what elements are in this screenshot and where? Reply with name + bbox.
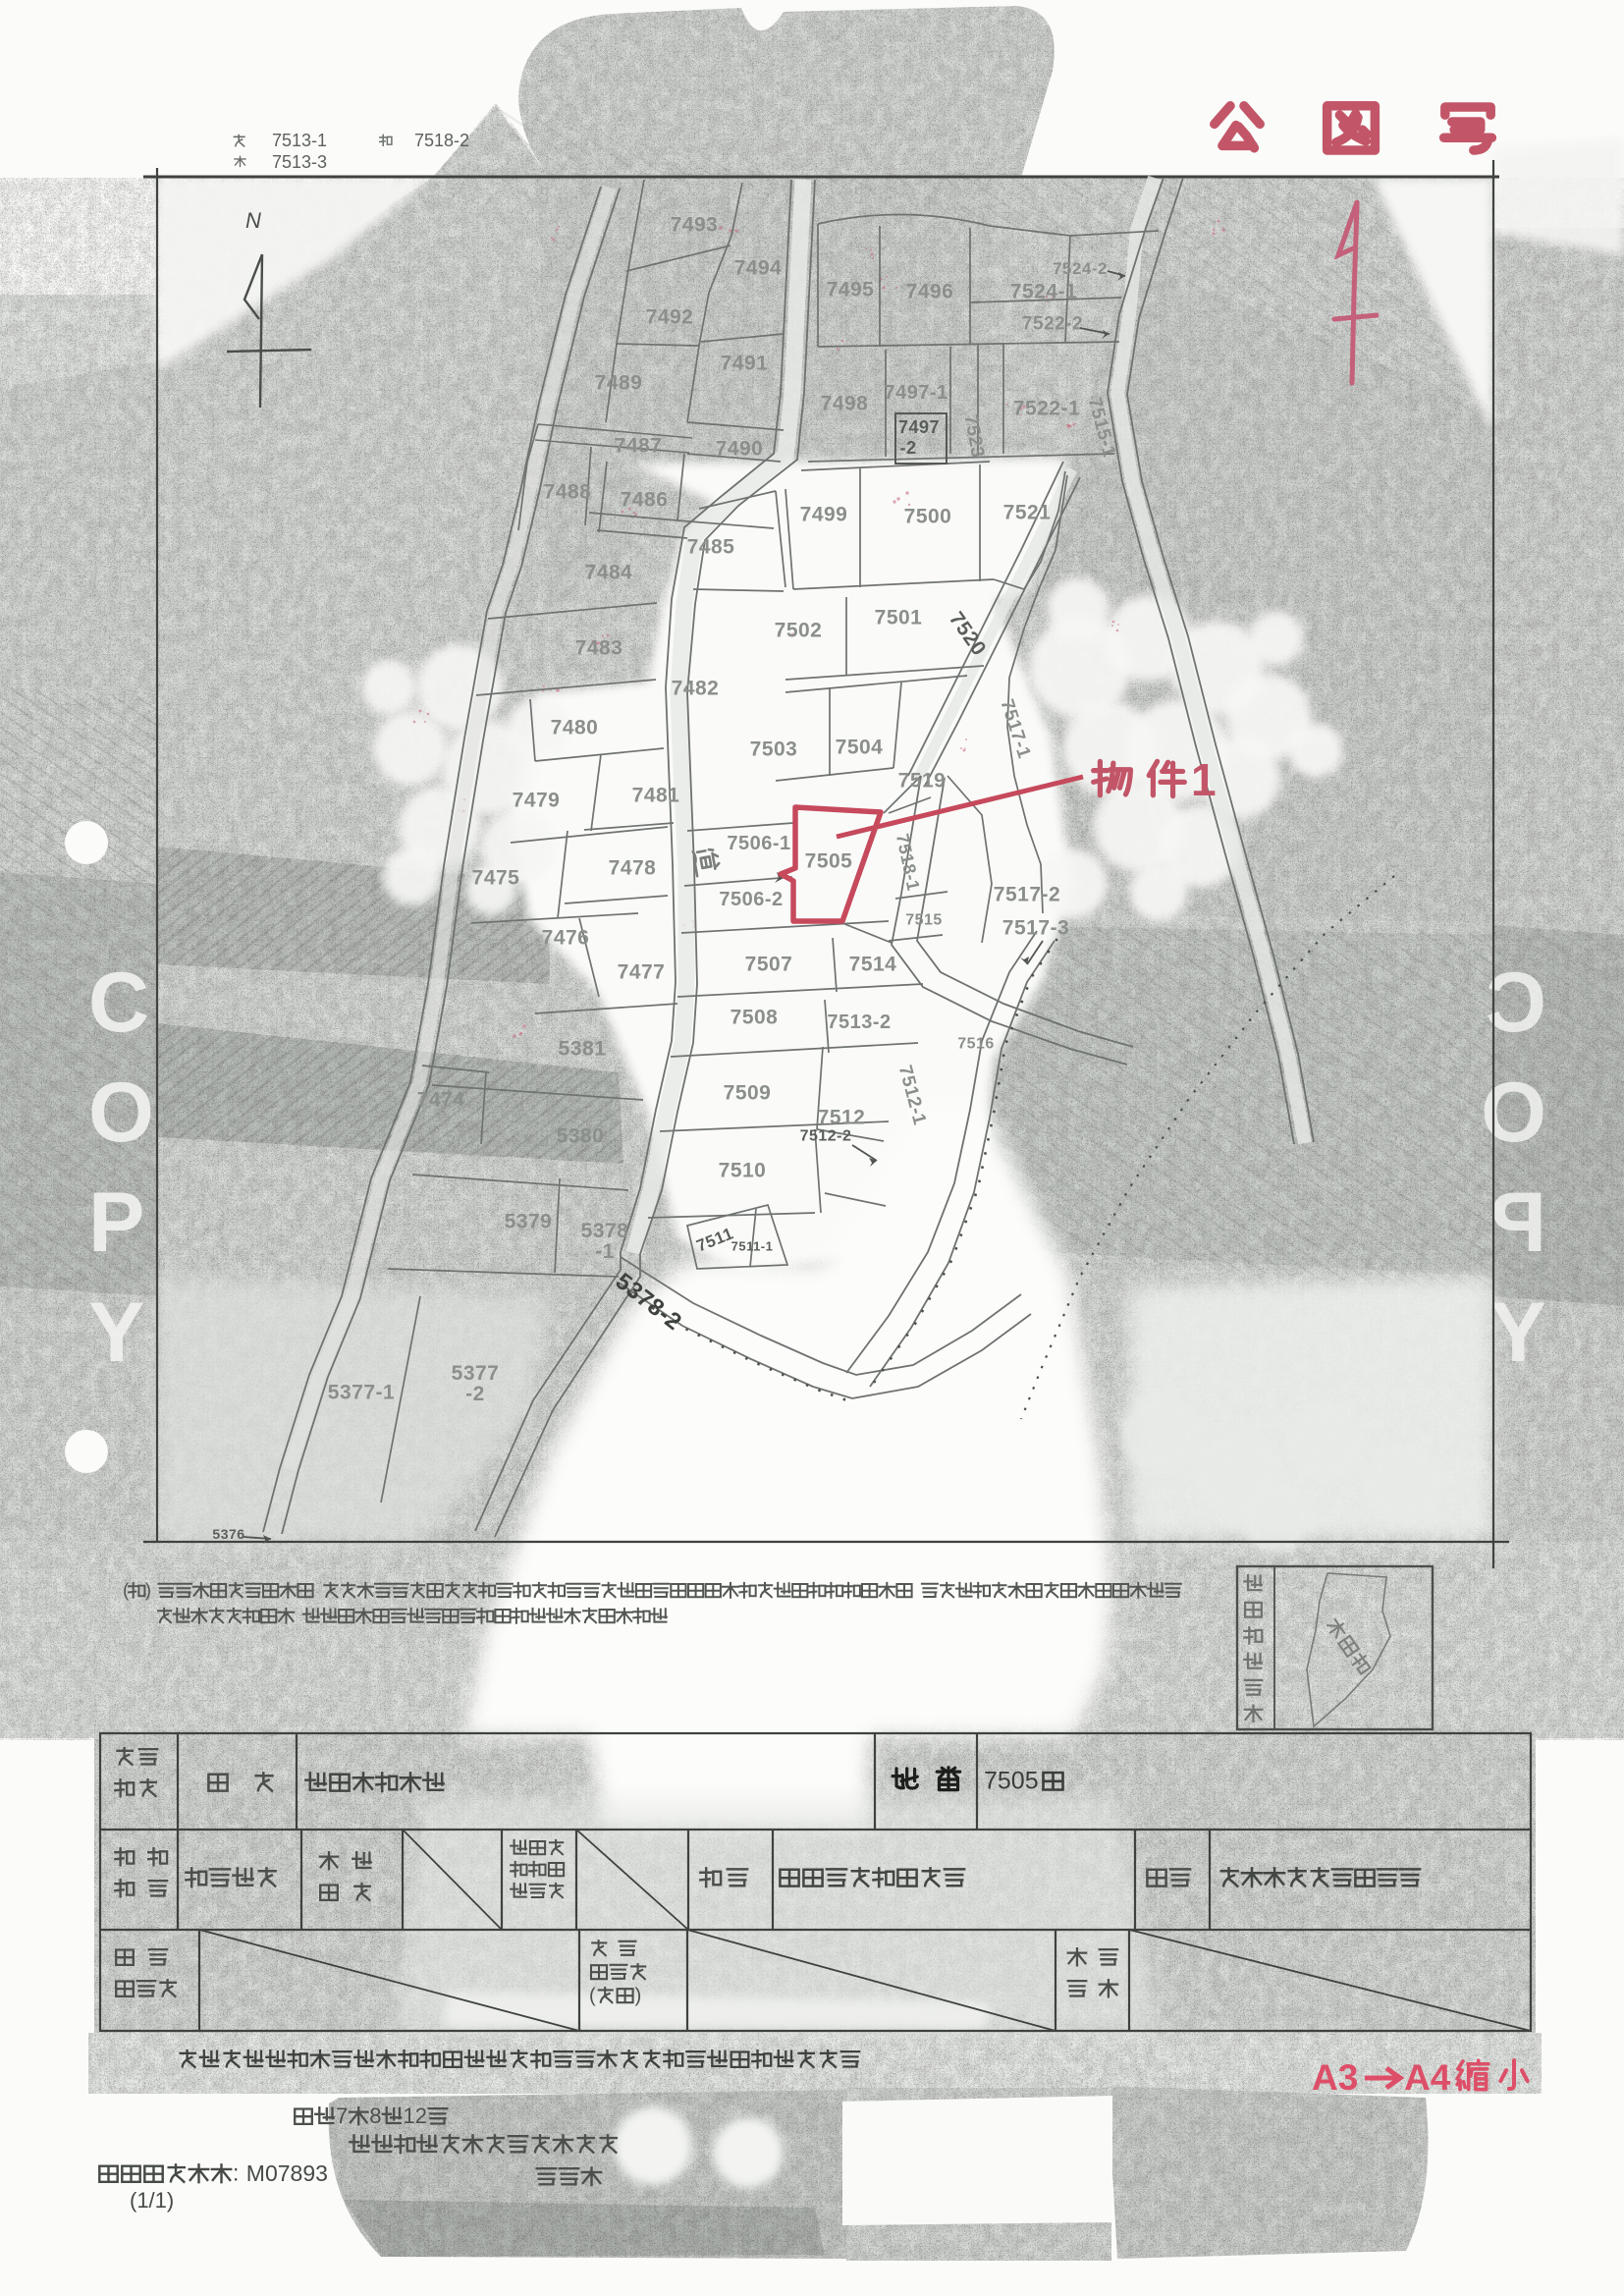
svg-text:7513-3: 7513-3	[272, 152, 327, 172]
svg-text:7487: 7487	[615, 434, 663, 457]
svg-text:7503: 7503	[750, 738, 798, 760]
svg-text:): )	[635, 1985, 642, 2006]
svg-text:7495: 7495	[827, 278, 875, 301]
svg-text:7497-1: 7497-1	[884, 382, 947, 404]
svg-text:7482: 7482	[672, 677, 720, 699]
svg-text:5379: 5379	[505, 1210, 553, 1232]
svg-text:7511-1: 7511-1	[731, 1239, 774, 1254]
svg-text:7488: 7488	[544, 480, 592, 503]
svg-text:P: P	[88, 1175, 144, 1270]
svg-text:7486: 7486	[621, 488, 669, 511]
svg-text:7518-2: 7518-2	[414, 131, 469, 150]
svg-text:7514: 7514	[849, 953, 897, 975]
svg-text:7524-2: 7524-2	[1053, 259, 1108, 278]
svg-text:7501: 7501	[875, 606, 923, 629]
svg-text:7484: 7484	[585, 561, 633, 583]
svg-text:7492: 7492	[646, 305, 694, 328]
svg-text:7504: 7504	[836, 736, 884, 758]
svg-text:7497: 7497	[898, 417, 940, 437]
svg-text:7509: 7509	[724, 1081, 772, 1104]
svg-text:Y: Y	[1490, 1285, 1546, 1380]
svg-text:7496: 7496	[906, 280, 954, 302]
svg-text:7481: 7481	[632, 784, 680, 806]
svg-text:7519: 7519	[898, 769, 947, 792]
svg-text:7522-2: 7522-2	[1022, 314, 1083, 335]
svg-text:-1: -1	[595, 1240, 615, 1263]
svg-text:7479: 7479	[513, 789, 561, 811]
svg-text:7512: 7512	[818, 1106, 866, 1128]
svg-text:7494: 7494	[734, 256, 783, 279]
svg-text:7474: 7474	[417, 1088, 465, 1111]
svg-text:7490: 7490	[716, 437, 764, 460]
svg-text:12: 12	[404, 2104, 427, 2128]
svg-text:5380: 5380	[557, 1124, 605, 1147]
svg-text:7517-2: 7517-2	[994, 883, 1060, 905]
svg-text:7510: 7510	[719, 1159, 767, 1181]
svg-text:7522-1: 7522-1	[1013, 397, 1080, 419]
svg-text:7478: 7478	[609, 856, 657, 879]
svg-text:-2: -2	[465, 1383, 485, 1405]
svg-text:(: (	[123, 1581, 130, 1602]
svg-text:7499: 7499	[800, 503, 848, 525]
svg-text:(: (	[589, 1985, 596, 2006]
svg-text:7515: 7515	[905, 912, 943, 929]
svg-text:7508: 7508	[731, 1006, 779, 1028]
svg-text:7476: 7476	[542, 926, 590, 949]
svg-text:7505: 7505	[984, 1768, 1039, 1795]
svg-text:7507: 7507	[745, 953, 793, 975]
svg-text:A3: A3	[1312, 2057, 1358, 2098]
svg-text:N: N	[245, 208, 261, 233]
svg-text:7505: 7505	[805, 849, 853, 872]
svg-text:P: P	[1490, 1175, 1546, 1270]
svg-text:5381: 5381	[559, 1037, 607, 1060]
svg-text:): )	[145, 1581, 151, 1602]
svg-text:7500: 7500	[904, 505, 952, 527]
svg-text:7524-1: 7524-1	[1010, 280, 1077, 302]
svg-text:7521: 7521	[1003, 501, 1052, 523]
svg-text:7513-1: 7513-1	[272, 131, 327, 150]
svg-text:-2: -2	[899, 438, 916, 458]
svg-text:5377: 5377	[452, 1362, 500, 1385]
svg-text:7480: 7480	[551, 716, 599, 738]
svg-text:(1/1): (1/1)	[130, 2188, 174, 2213]
svg-text:C: C	[1486, 956, 1546, 1050]
svg-text:7: 7	[336, 2104, 348, 2128]
svg-text:1: 1	[1191, 754, 1217, 805]
svg-text:7485: 7485	[687, 535, 735, 558]
svg-text:Y: Y	[88, 1285, 144, 1380]
svg-text:7475: 7475	[472, 866, 520, 889]
svg-text:7493: 7493	[671, 213, 719, 236]
svg-text:O: O	[88, 1066, 154, 1160]
svg-text:7512-2: 7512-2	[800, 1128, 852, 1145]
svg-text::: :	[233, 2159, 239, 2185]
svg-text:7477: 7477	[618, 960, 666, 983]
svg-text:7513-2: 7513-2	[827, 1011, 891, 1033]
svg-text:7483: 7483	[575, 636, 623, 659]
svg-text:7489: 7489	[595, 371, 643, 394]
svg-text:5376: 5376	[212, 1526, 244, 1542]
svg-text:7491: 7491	[721, 352, 769, 374]
svg-text:7506-2: 7506-2	[719, 889, 783, 910]
svg-text:O: O	[1481, 1066, 1546, 1160]
svg-text:7516: 7516	[957, 1036, 995, 1053]
svg-text:5377-1: 5377-1	[328, 1381, 395, 1403]
svg-text:M07893: M07893	[246, 2160, 328, 2186]
svg-text:7506-1: 7506-1	[727, 833, 790, 854]
svg-text:7517-3: 7517-3	[1002, 916, 1069, 939]
svg-text:C: C	[88, 956, 149, 1050]
svg-text:A4: A4	[1404, 2057, 1451, 2098]
svg-text:5378: 5378	[581, 1220, 629, 1242]
svg-text:8: 8	[369, 2104, 381, 2128]
svg-text:7502: 7502	[775, 619, 823, 641]
svg-text:7498: 7498	[821, 392, 869, 414]
